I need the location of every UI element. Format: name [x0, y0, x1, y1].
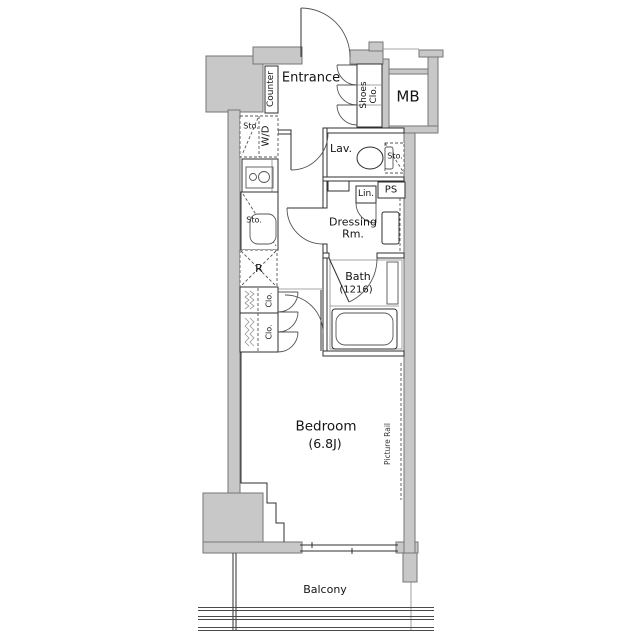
bathtub-icon — [332, 309, 397, 349]
label-closet-upper: Clo. — [266, 292, 275, 307]
room-label-dressing: Dressing Rm. — [324, 217, 382, 242]
shoes-closet-east-wall — [382, 59, 389, 128]
label-bedroom-size: (6.8J) — [308, 437, 341, 451]
label-storage-kitchen: Sto. — [246, 217, 262, 226]
stove-icon — [242, 159, 278, 192]
balcony-window — [300, 542, 398, 554]
north-wall-stub — [369, 42, 383, 51]
floor-plan-canvas: Entrance Counter Shoes Clo. MB Sto. W/D … — [0, 0, 640, 640]
balcony-wall-stub — [403, 553, 417, 582]
south-wall-left — [203, 542, 302, 553]
label-counter: Counter — [266, 71, 276, 107]
label-closet-lower: Clo. — [266, 324, 275, 339]
dressing-door-swing — [287, 208, 323, 244]
floor-plan-drawing — [0, 0, 640, 640]
room-label-lavatory: Lav. — [330, 143, 352, 155]
label-storage-lavatory: Sto. — [387, 153, 403, 162]
label-washer-dryer: W/D — [260, 126, 271, 147]
label-bath-size: (1216) — [339, 284, 372, 295]
entrance-north-wall-left — [253, 47, 302, 64]
meter-box-top-flange — [419, 50, 443, 57]
meter-box-east-wall — [428, 50, 438, 133]
label-refrigerator: R — [255, 263, 263, 275]
room-label-meter-box: MB — [396, 89, 419, 106]
label-storage-entry: Sto. — [243, 123, 259, 132]
bath-ledge — [387, 262, 398, 304]
label-shoes-closet: Shoes Clo. — [359, 72, 379, 118]
washbasin — [328, 181, 349, 191]
entrance-north-wall-right — [350, 50, 383, 64]
room-label-balcony: Balcony — [303, 584, 347, 596]
hall-door-swing — [291, 133, 328, 170]
room-label-entrance: Entrance — [282, 72, 340, 87]
meter-box-inner-top — [388, 69, 428, 74]
bedroom-area — [241, 352, 401, 554]
room-label-bath: Bath — [345, 271, 371, 283]
balcony-railing — [198, 608, 434, 631]
bedroom-door-swing — [285, 290, 323, 351]
west-wall — [228, 110, 240, 495]
east-wall — [404, 126, 415, 553]
label-linen: Lin. — [358, 189, 374, 199]
label-picture-rail: Picture Rail — [384, 423, 392, 465]
entrance-door-swing — [301, 8, 350, 57]
washing-machine — [382, 212, 399, 244]
room-label-bedroom: Bedroom — [295, 419, 356, 434]
closet-door-swings — [278, 292, 298, 352]
label-pipe-space: PS — [385, 184, 397, 195]
